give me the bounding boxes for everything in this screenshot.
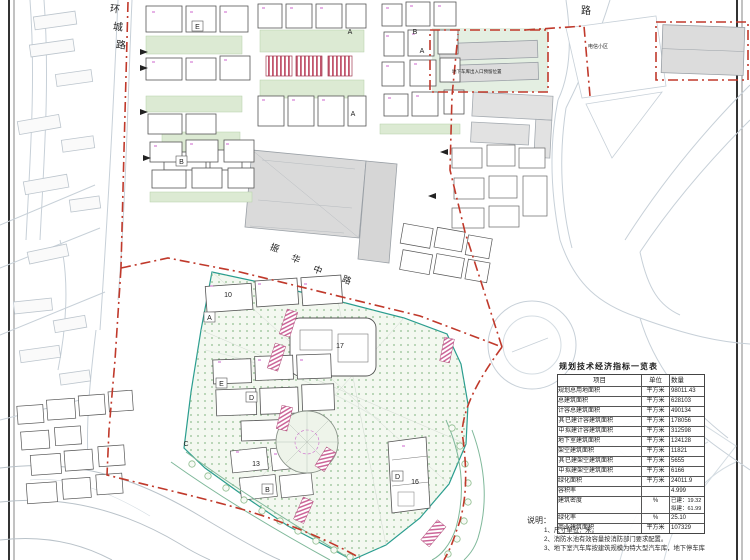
row-group: 其 xyxy=(558,417,565,426)
row-group: 中 xyxy=(558,467,565,476)
indicators-table-title: 规划技术经济指标一览表 xyxy=(559,361,705,372)
park-area xyxy=(184,272,468,560)
district-label: 电信小区 xyxy=(588,43,608,50)
row-value: 24011.9 xyxy=(669,477,704,486)
building-label-e2: E xyxy=(219,381,224,388)
building-label-a3: A xyxy=(351,111,356,118)
row-label: 地下室建筑面积 xyxy=(558,437,641,446)
row-unit: 平方米 xyxy=(641,467,669,476)
row-value: 490134 xyxy=(669,407,704,416)
building-cluster-mideast xyxy=(396,221,495,284)
row-label: 绿化面积 xyxy=(558,477,641,486)
building-cluster-east xyxy=(452,145,547,228)
row-unit: 平方米 xyxy=(641,427,669,436)
table-row: 架空建筑面积 平方米 11821 xyxy=(558,446,704,456)
central-plaza-building xyxy=(245,150,397,263)
row-group: 中 xyxy=(558,427,565,436)
row-unit xyxy=(641,487,669,496)
note-item: 2、消防水池有效容量按消防部门要求配置。 xyxy=(544,535,743,544)
row-value: 6166 xyxy=(669,467,704,476)
row-label: 已建架空建筑面积 xyxy=(565,457,641,466)
ring-road-char-1: 环 xyxy=(109,4,120,16)
note-item: 3、地下室汽车库按建筑规模为特大型汽车库，地下停车库 xyxy=(544,544,743,553)
notes-heading: 说明： xyxy=(527,516,743,526)
building-label-a2: A xyxy=(420,48,425,55)
indicators-table-body: 项目 单位 数量 规划总用地面积 平方米 98011.43 总建筑面积 平方米 … xyxy=(557,374,705,534)
building-label-b1: B xyxy=(179,159,184,166)
building-label-d1: D xyxy=(249,395,254,402)
mid-road-char-1: 振 xyxy=(269,241,281,255)
ring-road-char-3: 路 xyxy=(115,38,126,52)
mid-road-char-4: 路 xyxy=(341,273,353,287)
row-value: 628103 xyxy=(669,397,704,406)
drawing-sheet: 环 城 路 路 振 华 中 路 地下车库出入口预留位置 电信小区 E B A B… xyxy=(0,0,750,560)
table-header-qty: 数量 xyxy=(669,375,704,386)
building-label-13: 13 xyxy=(252,461,260,468)
building-label-10: 10 xyxy=(224,292,232,299)
note-item: 1、尺寸单位：米。 xyxy=(544,526,743,535)
table-row: 中拟建计容建筑面积 平方米 312598 xyxy=(558,426,704,436)
building-label-b2: B xyxy=(413,29,418,36)
building-label-a4: A xyxy=(207,315,212,322)
row-value-2: 拟建：61.99 xyxy=(671,505,704,513)
row-label: 架空建筑面积 xyxy=(558,447,641,456)
row-label: 已建计容建筑面积 xyxy=(565,417,641,426)
table-row: 其已建计容建筑面积 平方米 178056 xyxy=(558,416,704,426)
row-group: 其 xyxy=(558,457,565,466)
table-row: 其已建架空建筑面积 平方米 5655 xyxy=(558,456,704,466)
table-row: 绿化面积 平方米 24011.9 xyxy=(558,476,704,486)
row-value: 98011.43 xyxy=(669,387,704,396)
row-label: 拟建架空建筑面积 xyxy=(565,467,641,476)
ring-road-char-2: 城 xyxy=(112,21,123,34)
building-label-16: 16 xyxy=(411,479,419,486)
building-label-b3: B xyxy=(265,487,270,494)
row-unit: 平方米 xyxy=(641,397,669,406)
table-row: 建筑密度 % 已建：19.32 拟建：61.99 xyxy=(558,496,704,513)
existing-building-northeast xyxy=(661,25,745,76)
hatched-buildings xyxy=(266,56,352,76)
mid-road-char-3: 中 xyxy=(312,263,324,277)
building-label-d2: D xyxy=(395,474,400,481)
existing-buildings-west xyxy=(13,11,100,385)
building-label-e1: E xyxy=(195,24,200,31)
building-cluster-southwest xyxy=(16,390,139,504)
table-header-unit: 单位 xyxy=(641,375,669,386)
table-row: 地下室建筑面积 平方米 124128 xyxy=(558,436,704,446)
row-label: 规划总用地面积 xyxy=(558,387,641,396)
row-unit: 平方米 xyxy=(641,387,669,396)
table-row: 计容总建筑面积 平方米 490134 xyxy=(558,406,704,416)
row-unit: 平方米 xyxy=(641,457,669,466)
row-label: 容积率 xyxy=(558,487,641,496)
table-row: 总建筑面积 平方米 628103 xyxy=(558,396,704,406)
row-unit: 平方米 xyxy=(641,447,669,456)
row-value: 178056 xyxy=(669,417,704,426)
table-row: 容积率 4.999 xyxy=(558,486,704,496)
row-label: 计容总建筑面积 xyxy=(558,407,641,416)
row-value: 5655 xyxy=(669,457,704,466)
notes-block: 说明： 1、尺寸单位：米。 2、消防水池有效容量按消防部门要求配置。 3、地下室… xyxy=(527,516,743,553)
row-label: 拟建计容建筑面积 xyxy=(565,427,641,436)
indicators-table: 规划技术经济指标一览表 项目 单位 数量 规划总用地面积 平方米 98011.4… xyxy=(557,361,705,534)
row-value: 312598 xyxy=(669,427,704,436)
table-header-row: 项目 单位 数量 xyxy=(558,375,704,386)
row-label: 总建筑面积 xyxy=(558,397,641,406)
row-unit: 平方米 xyxy=(641,477,669,486)
building-label-a1: A xyxy=(348,29,353,36)
row-value: 4.999 xyxy=(669,487,704,496)
table-row: 中拟建架空建筑面积 平方米 6166 xyxy=(558,466,704,476)
building-label-17: 17 xyxy=(336,343,344,350)
row-value: 11821 xyxy=(669,447,704,456)
row-unit: 平方米 xyxy=(641,417,669,426)
top-right-road-label: 路 xyxy=(581,4,591,17)
table-row: 规划总用地面积 平方米 98011.43 xyxy=(558,386,704,396)
building-label-c1: C xyxy=(183,441,188,448)
northeast-parcels xyxy=(566,16,666,158)
table-header-item: 项目 xyxy=(558,375,641,386)
garage-entrance-note: 地下车库出入口预留位置 xyxy=(452,68,502,75)
row-unit: 平方米 xyxy=(641,437,669,446)
row-value: 124128 xyxy=(669,437,704,446)
row-label: 建筑密度 xyxy=(558,497,641,513)
row-value: 已建：19.32 xyxy=(671,497,704,505)
row-unit: 平方米 xyxy=(641,407,669,416)
row-unit: % xyxy=(641,497,669,513)
mid-road-char-2: 华 xyxy=(290,252,302,266)
